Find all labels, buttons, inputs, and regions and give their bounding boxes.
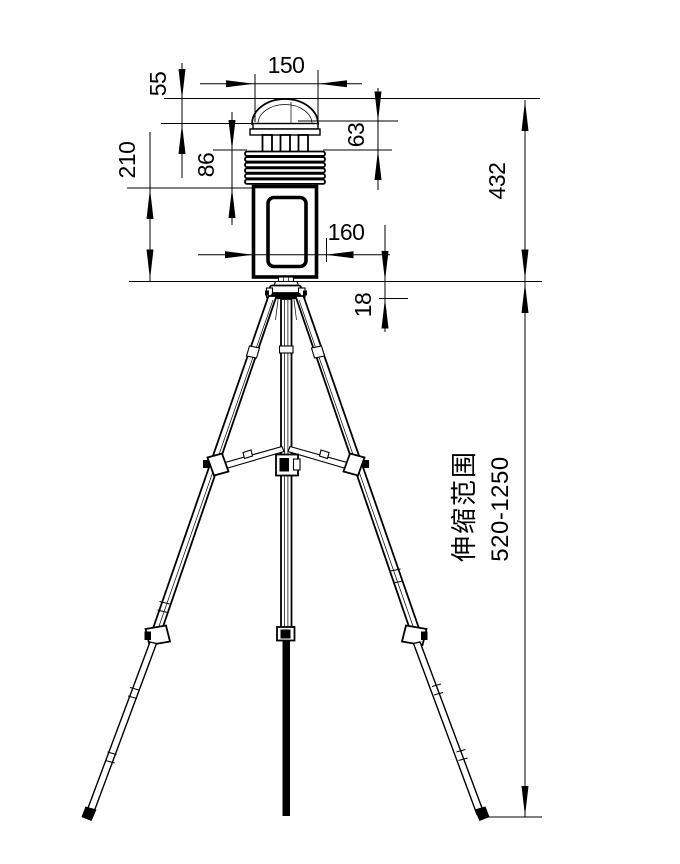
louver-stack <box>245 152 325 184</box>
column-collar-bolt <box>280 458 290 472</box>
lower-clamp-left-lever <box>145 632 152 641</box>
brace-clamp-left-bolt <box>203 460 209 468</box>
dim-86: 86 <box>193 112 236 225</box>
dim-55-label: 55 <box>145 72 171 97</box>
dim-63: 63 <box>343 88 382 190</box>
head-bolt-left <box>265 291 269 296</box>
center-rod <box>283 641 291 817</box>
tripod <box>82 296 490 821</box>
dimensions: 150 55 63 86 210 <box>114 52 542 817</box>
dim-18-label: 18 <box>350 293 376 318</box>
dim-432: 432 <box>484 100 529 281</box>
dome <box>252 99 318 124</box>
enclosure-panel <box>268 198 306 267</box>
leg-latch-right <box>312 346 325 358</box>
leg-right-lower <box>414 642 484 815</box>
drawing-page: 150 55 63 86 210 <box>0 0 680 864</box>
extension-lines <box>127 70 542 817</box>
post-right <box>299 135 309 152</box>
leg-latch-left <box>247 346 260 358</box>
dim-86-label: 86 <box>193 153 219 178</box>
tripod-head <box>270 286 301 294</box>
technical-drawing: 150 55 63 86 210 <box>0 0 680 864</box>
post-left <box>263 135 273 152</box>
post-center <box>281 135 291 152</box>
dim-150: 150 <box>200 52 362 87</box>
dim-210-label: 210 <box>114 142 140 179</box>
weather-station <box>245 99 325 299</box>
dim-432-label: 432 <box>484 163 510 200</box>
lower-clamp-center-lever <box>281 630 291 639</box>
dim-55: 55 <box>145 63 186 178</box>
dim-210: 210 <box>114 132 154 281</box>
mount-stem <box>279 277 294 282</box>
cap-plate-top <box>253 124 318 130</box>
telescopic-range-value: 520-1250 <box>487 456 514 561</box>
column-collar-knob <box>294 459 301 470</box>
column-band <box>280 346 294 353</box>
leg-left-lower <box>87 642 157 815</box>
lower-clamp-right-lever <box>421 632 428 641</box>
telescopic-range-label: 伸缩范围 <box>449 450 479 562</box>
dim-160-label: 160 <box>328 219 365 245</box>
dim-63-label: 63 <box>343 123 369 148</box>
brace-clamp-right-bolt <box>363 460 369 468</box>
dim-150-label: 150 <box>268 52 305 78</box>
dim-telescopic-range: 伸缩范围 520-1250 <box>449 282 529 818</box>
head-bolt-right <box>303 291 307 296</box>
